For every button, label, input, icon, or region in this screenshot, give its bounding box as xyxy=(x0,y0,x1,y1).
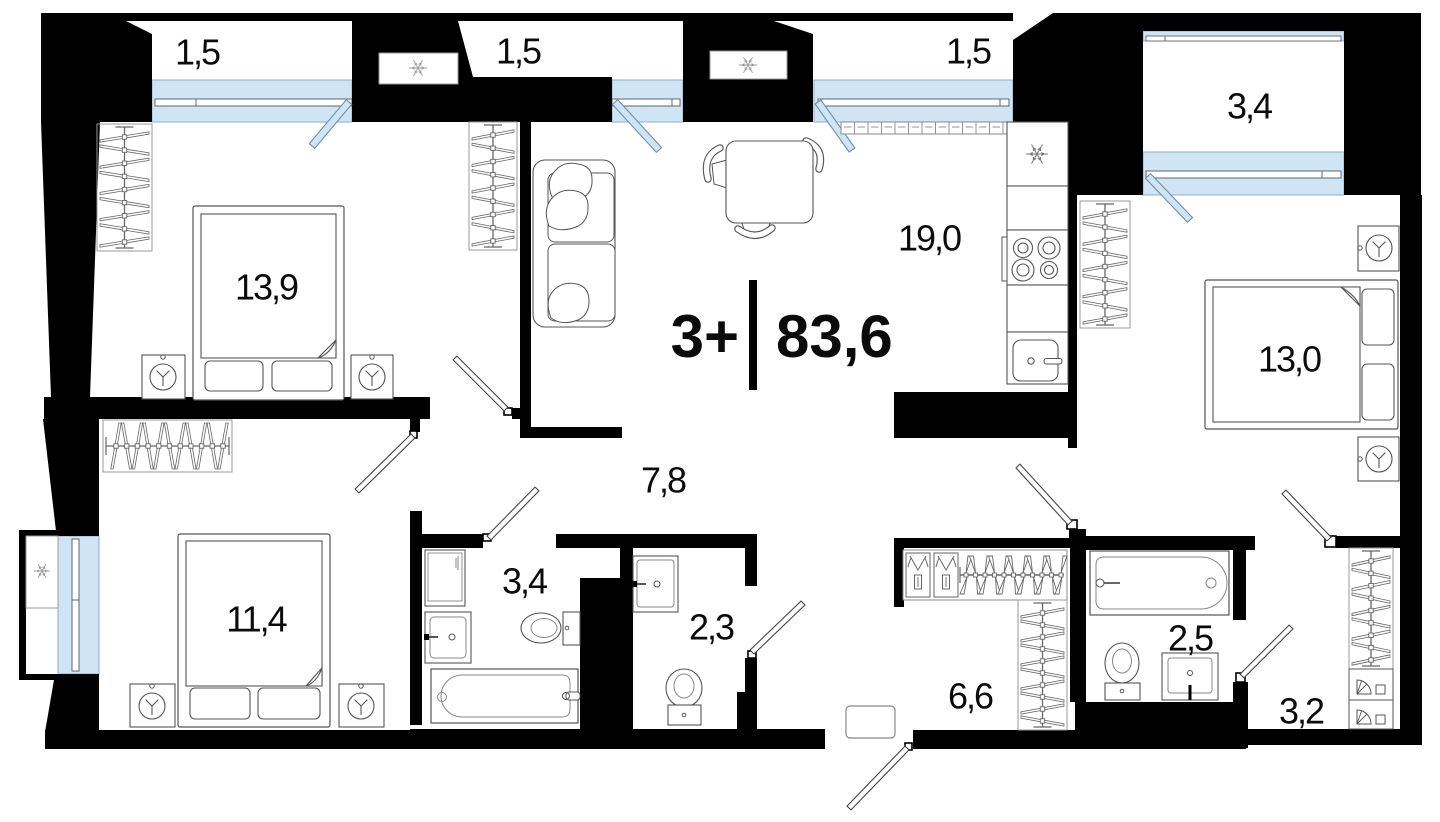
svg-text:1,5: 1,5 xyxy=(175,32,220,73)
svg-text:83,6: 83,6 xyxy=(776,303,893,370)
svg-text:2,5: 2,5 xyxy=(1168,618,1213,659)
svg-text:3+: 3+ xyxy=(671,303,739,370)
svg-text:3,4: 3,4 xyxy=(502,561,547,602)
svg-text:3,4: 3,4 xyxy=(1227,86,1272,127)
svg-text:7,8: 7,8 xyxy=(641,460,686,501)
svg-text:13,9: 13,9 xyxy=(235,267,298,308)
svg-text:2,3: 2,3 xyxy=(689,607,734,648)
svg-text:6,6: 6,6 xyxy=(948,676,993,717)
svg-text:13,0: 13,0 xyxy=(1258,339,1321,380)
svg-text:1,5: 1,5 xyxy=(496,31,541,72)
svg-text:3,2: 3,2 xyxy=(1279,691,1324,732)
svg-text:11,4: 11,4 xyxy=(226,599,286,640)
svg-text:1,5: 1,5 xyxy=(946,31,991,72)
svg-text:19,0: 19,0 xyxy=(898,218,961,259)
